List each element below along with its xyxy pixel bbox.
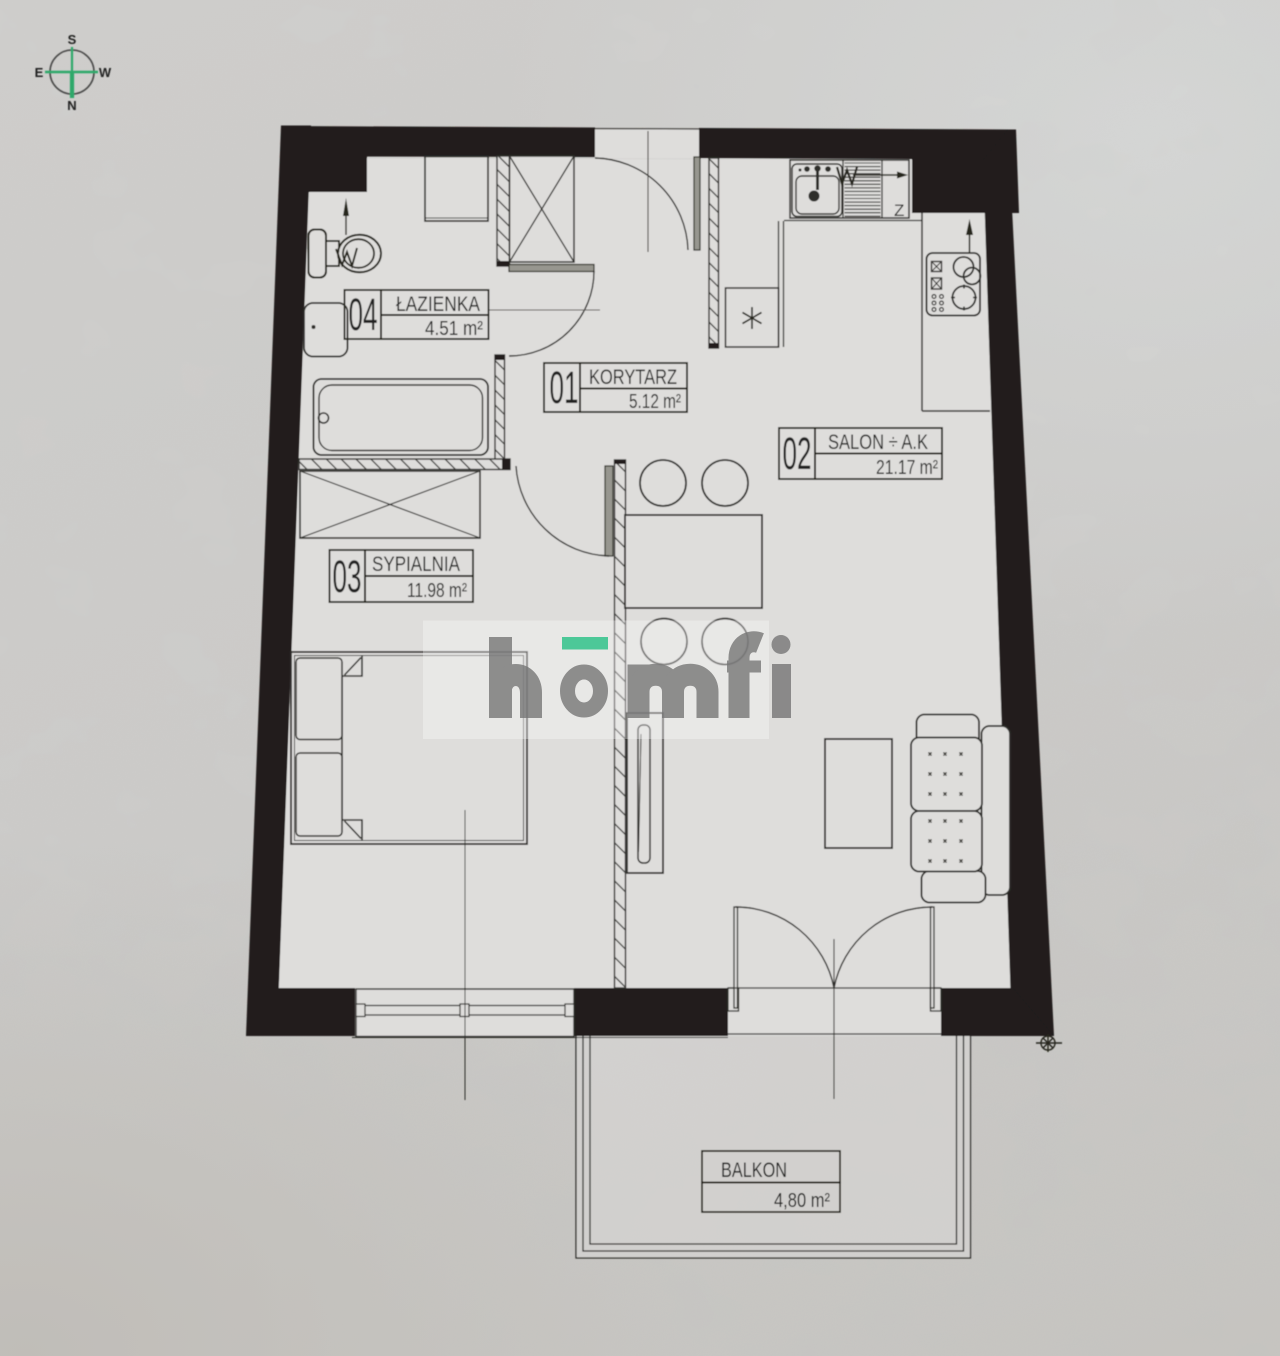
svg-text:04: 04: [349, 289, 378, 340]
svg-text:4,80 m²: 4,80 m²: [774, 1190, 830, 1212]
svg-text:03: 03: [333, 551, 362, 602]
svg-text:ŁAZIENKA: ŁAZIENKA: [396, 293, 480, 316]
svg-text:N: N: [67, 98, 76, 113]
svg-text:S: S: [68, 32, 77, 47]
svg-text:SYPIALNIA: SYPIALNIA: [372, 553, 460, 576]
svg-text:Z: Z: [894, 201, 904, 220]
svg-text:E: E: [35, 65, 44, 80]
svg-text:W: W: [99, 65, 112, 80]
svg-text:KORYTARZ: KORYTARZ: [589, 366, 677, 389]
svg-text:01: 01: [550, 362, 579, 413]
svg-text:4.51 m²: 4.51 m²: [425, 318, 483, 340]
svg-text:SALON ÷ A.K: SALON ÷ A.K: [828, 431, 928, 454]
svg-text:5.12 m²: 5.12 m²: [629, 391, 681, 413]
svg-text:21.17 m²: 21.17 m²: [876, 457, 938, 479]
svg-text:BALKON: BALKON: [721, 1159, 787, 1182]
svg-text:02: 02: [783, 428, 812, 479]
svg-text:11.98 m²: 11.98 m²: [407, 580, 467, 602]
